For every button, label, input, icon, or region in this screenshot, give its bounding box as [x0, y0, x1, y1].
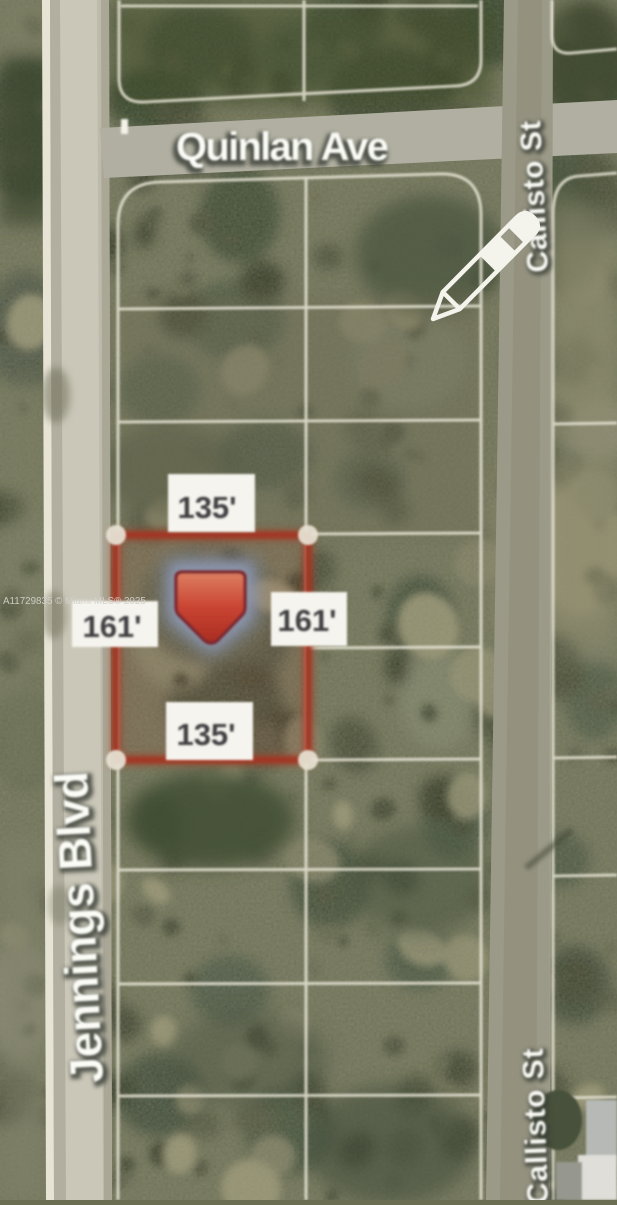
svg-text:A11729835 © Miami MLS® 2025: A11729835 © Miami MLS® 2025 [3, 596, 146, 607]
svg-text:161': 161' [82, 609, 141, 644]
svg-text:161': 161' [277, 603, 336, 638]
svg-text:135': 135' [177, 490, 236, 525]
svg-text:135': 135' [176, 717, 235, 752]
svg-text:Callisto St: Callisto St [517, 1048, 555, 1200]
svg-text:Quinlan Ave: Quinlan Ave [176, 125, 389, 169]
